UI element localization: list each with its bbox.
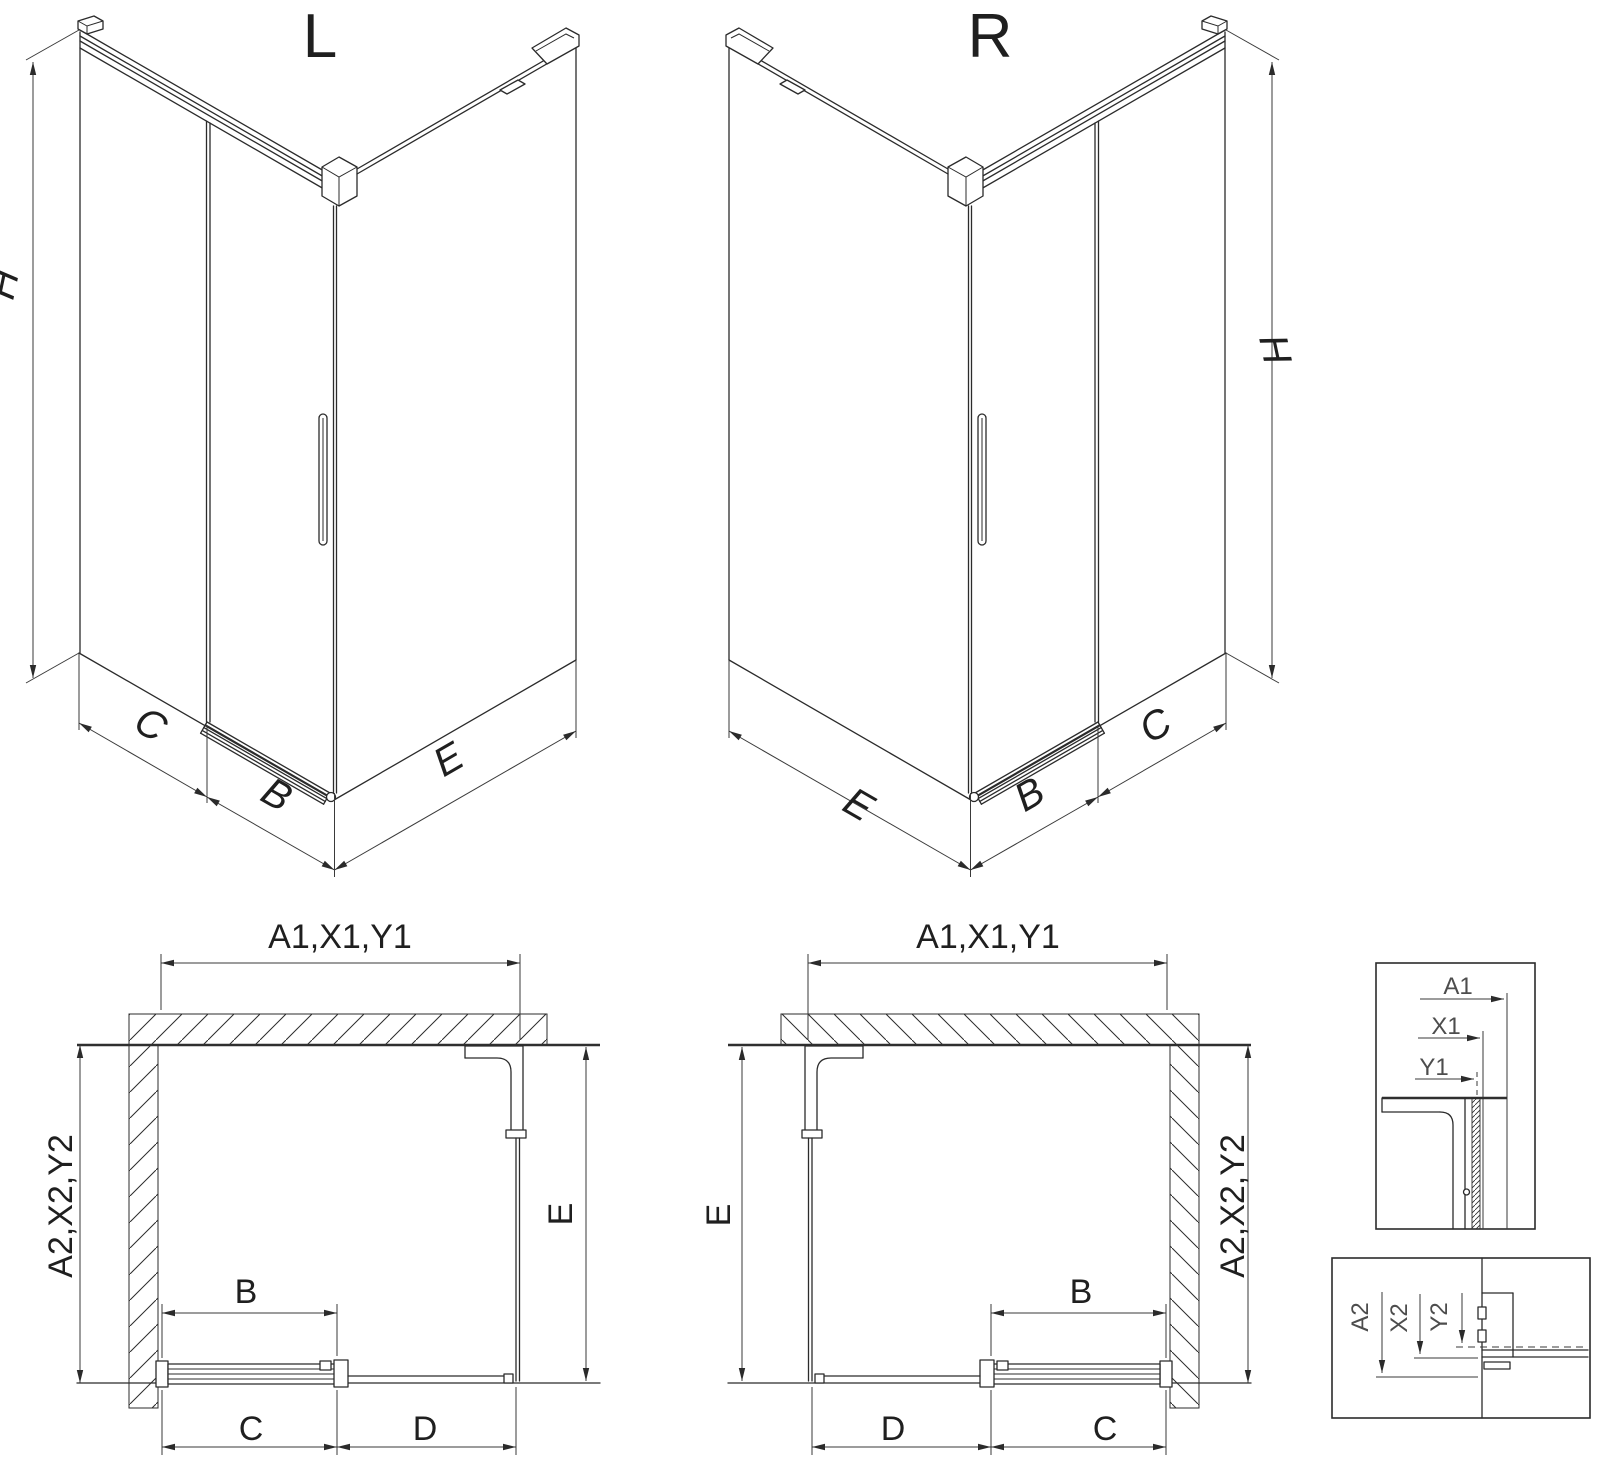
- dim-label-x2: X2: [1386, 1303, 1413, 1332]
- wall-profile: [1440, 1112, 1453, 1229]
- dim-label-b: B: [1070, 1273, 1093, 1311]
- dim-label-b: B: [235, 1273, 258, 1311]
- dim-label-a2x2y2: A2,X2,Y2: [42, 1134, 80, 1278]
- dim-label-e: E: [542, 1203, 580, 1226]
- dim-label-d: D: [881, 1410, 906, 1448]
- dim-label-x1: X1: [1431, 1013, 1460, 1040]
- dim-label-c: C: [239, 1410, 264, 1448]
- detail-box: [1376, 963, 1535, 1229]
- dim-label-a1: A1: [1443, 973, 1472, 1000]
- technical-drawing-sheet: L H C B E R H C B E A1,X1,Y1 A2,X2,Y2 B …: [0, 0, 1600, 1458]
- dim-label-b: B: [1007, 769, 1052, 820]
- dim-label-y2: Y2: [1426, 1302, 1453, 1331]
- detail-box: [1332, 1258, 1590, 1418]
- dim-label-a2: A2: [1347, 1302, 1374, 1331]
- dim-label-y1: Y1: [1419, 1054, 1448, 1081]
- dim-label-e: E: [426, 733, 472, 785]
- dim-label-c: C: [1093, 1410, 1118, 1448]
- iso-view-right: R H C B E: [726, 2, 1299, 877]
- dim-label-b: B: [254, 769, 299, 820]
- dim-label-e: E: [700, 1204, 738, 1227]
- dim-label-c: C: [127, 698, 175, 751]
- dim-label-h: H: [1250, 331, 1299, 369]
- plan-view-right: A1,X1,Y1 A2,X2,Y2 B D C E: [700, 918, 1252, 1455]
- shower-enclosure-drawing: L H C B E R H C B E A1,X1,Y1 A2,X2,Y2 B …: [0, 0, 1600, 1458]
- dim-label-a1x1y1: A1,X1,Y1: [268, 918, 412, 956]
- detail-view-bottom: A2 X2 Y2: [1332, 1258, 1590, 1418]
- dim-label-h: H: [0, 265, 28, 303]
- view-title-l: L: [303, 2, 337, 71]
- plan-view-left: A1,X1,Y1 A2,X2,Y2 B C D E: [42, 918, 600, 1455]
- dim-label-a2x2y2: A2,X2,Y2: [1214, 1134, 1252, 1278]
- dim-label-a1x1y1: A1,X1,Y1: [916, 918, 1060, 956]
- dim-label-d: D: [413, 1410, 438, 1448]
- dim-label-c: C: [1132, 699, 1180, 752]
- glass-section: [1472, 1098, 1480, 1229]
- iso-view-left: L H C B E: [0, 2, 579, 877]
- view-title-r: R: [968, 2, 1013, 71]
- dim-label-e: E: [836, 779, 882, 831]
- detail-view-top: A1 X1 Y1: [1376, 963, 1535, 1229]
